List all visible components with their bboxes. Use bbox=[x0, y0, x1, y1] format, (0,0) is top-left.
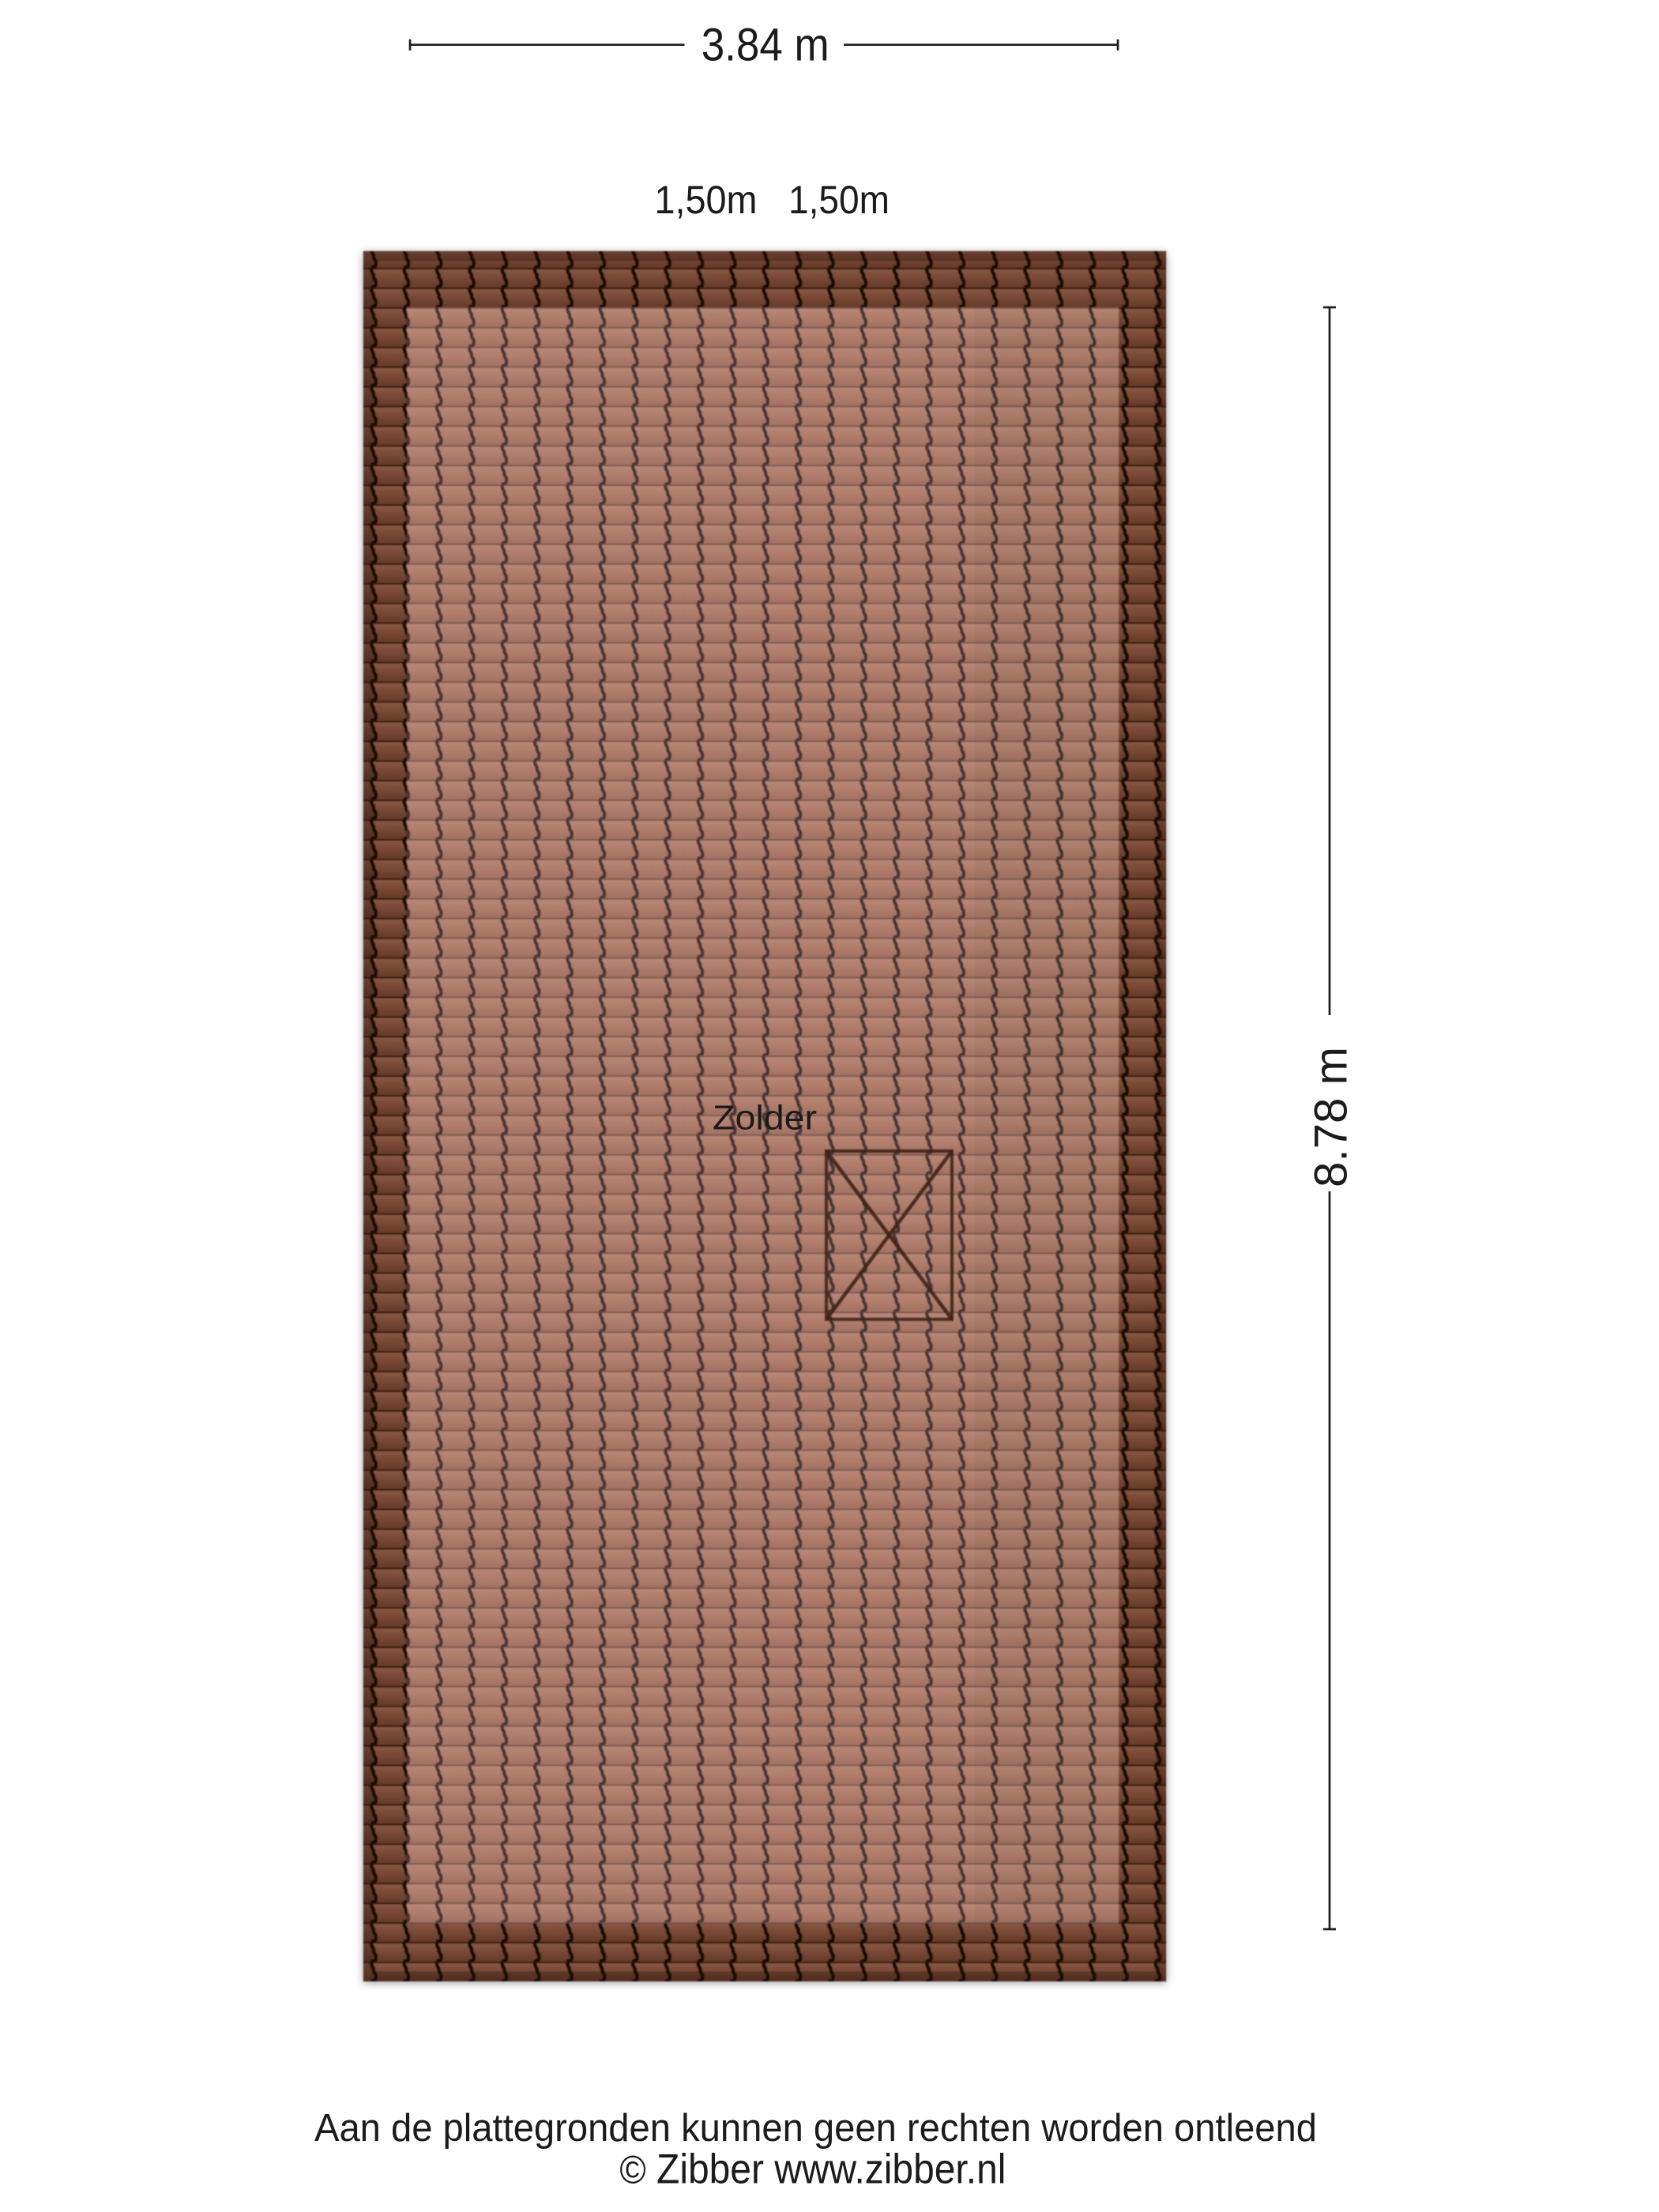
svg-text:1,50m: 1,50m bbox=[655, 178, 758, 222]
svg-text:8.78 m: 8.78 m bbox=[1306, 1047, 1357, 1187]
svg-text:Aan de plattegronden kunnen ge: Aan de plattegronden kunnen geen rechten… bbox=[314, 2106, 1317, 2150]
svg-text:3.84 m: 3.84 m bbox=[702, 19, 829, 70]
svg-text:© Zibber www.zibber.nl: © Zibber www.zibber.nl bbox=[619, 2146, 1006, 2193]
svg-text:1,50m: 1,50m bbox=[788, 178, 890, 222]
svg-text:Zolder: Zolder bbox=[713, 1099, 817, 1138]
